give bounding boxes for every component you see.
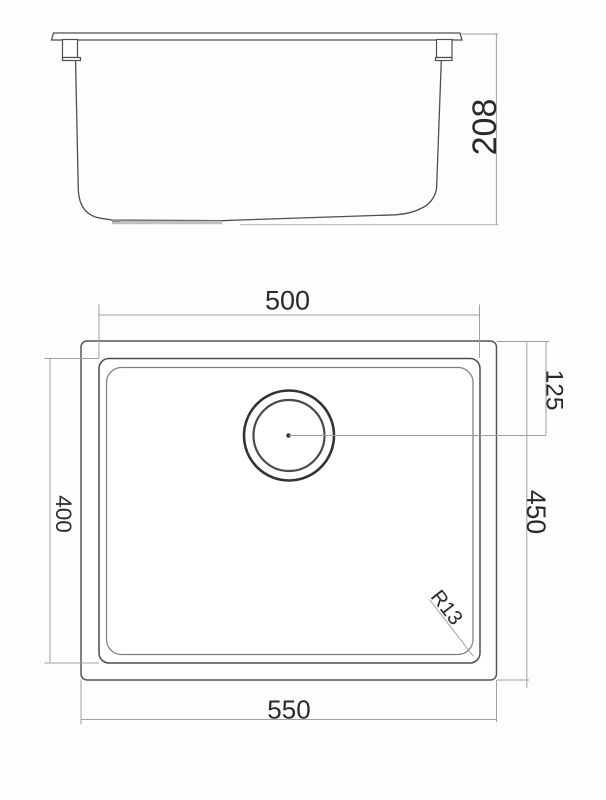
svg-text:208: 208 — [466, 99, 504, 156]
svg-text:125: 125 — [541, 370, 568, 411]
svg-text:500: 500 — [265, 286, 310, 316]
svg-text:450: 450 — [521, 490, 551, 534]
svg-text:400: 400 — [51, 495, 76, 533]
svg-text:550: 550 — [267, 695, 310, 725]
